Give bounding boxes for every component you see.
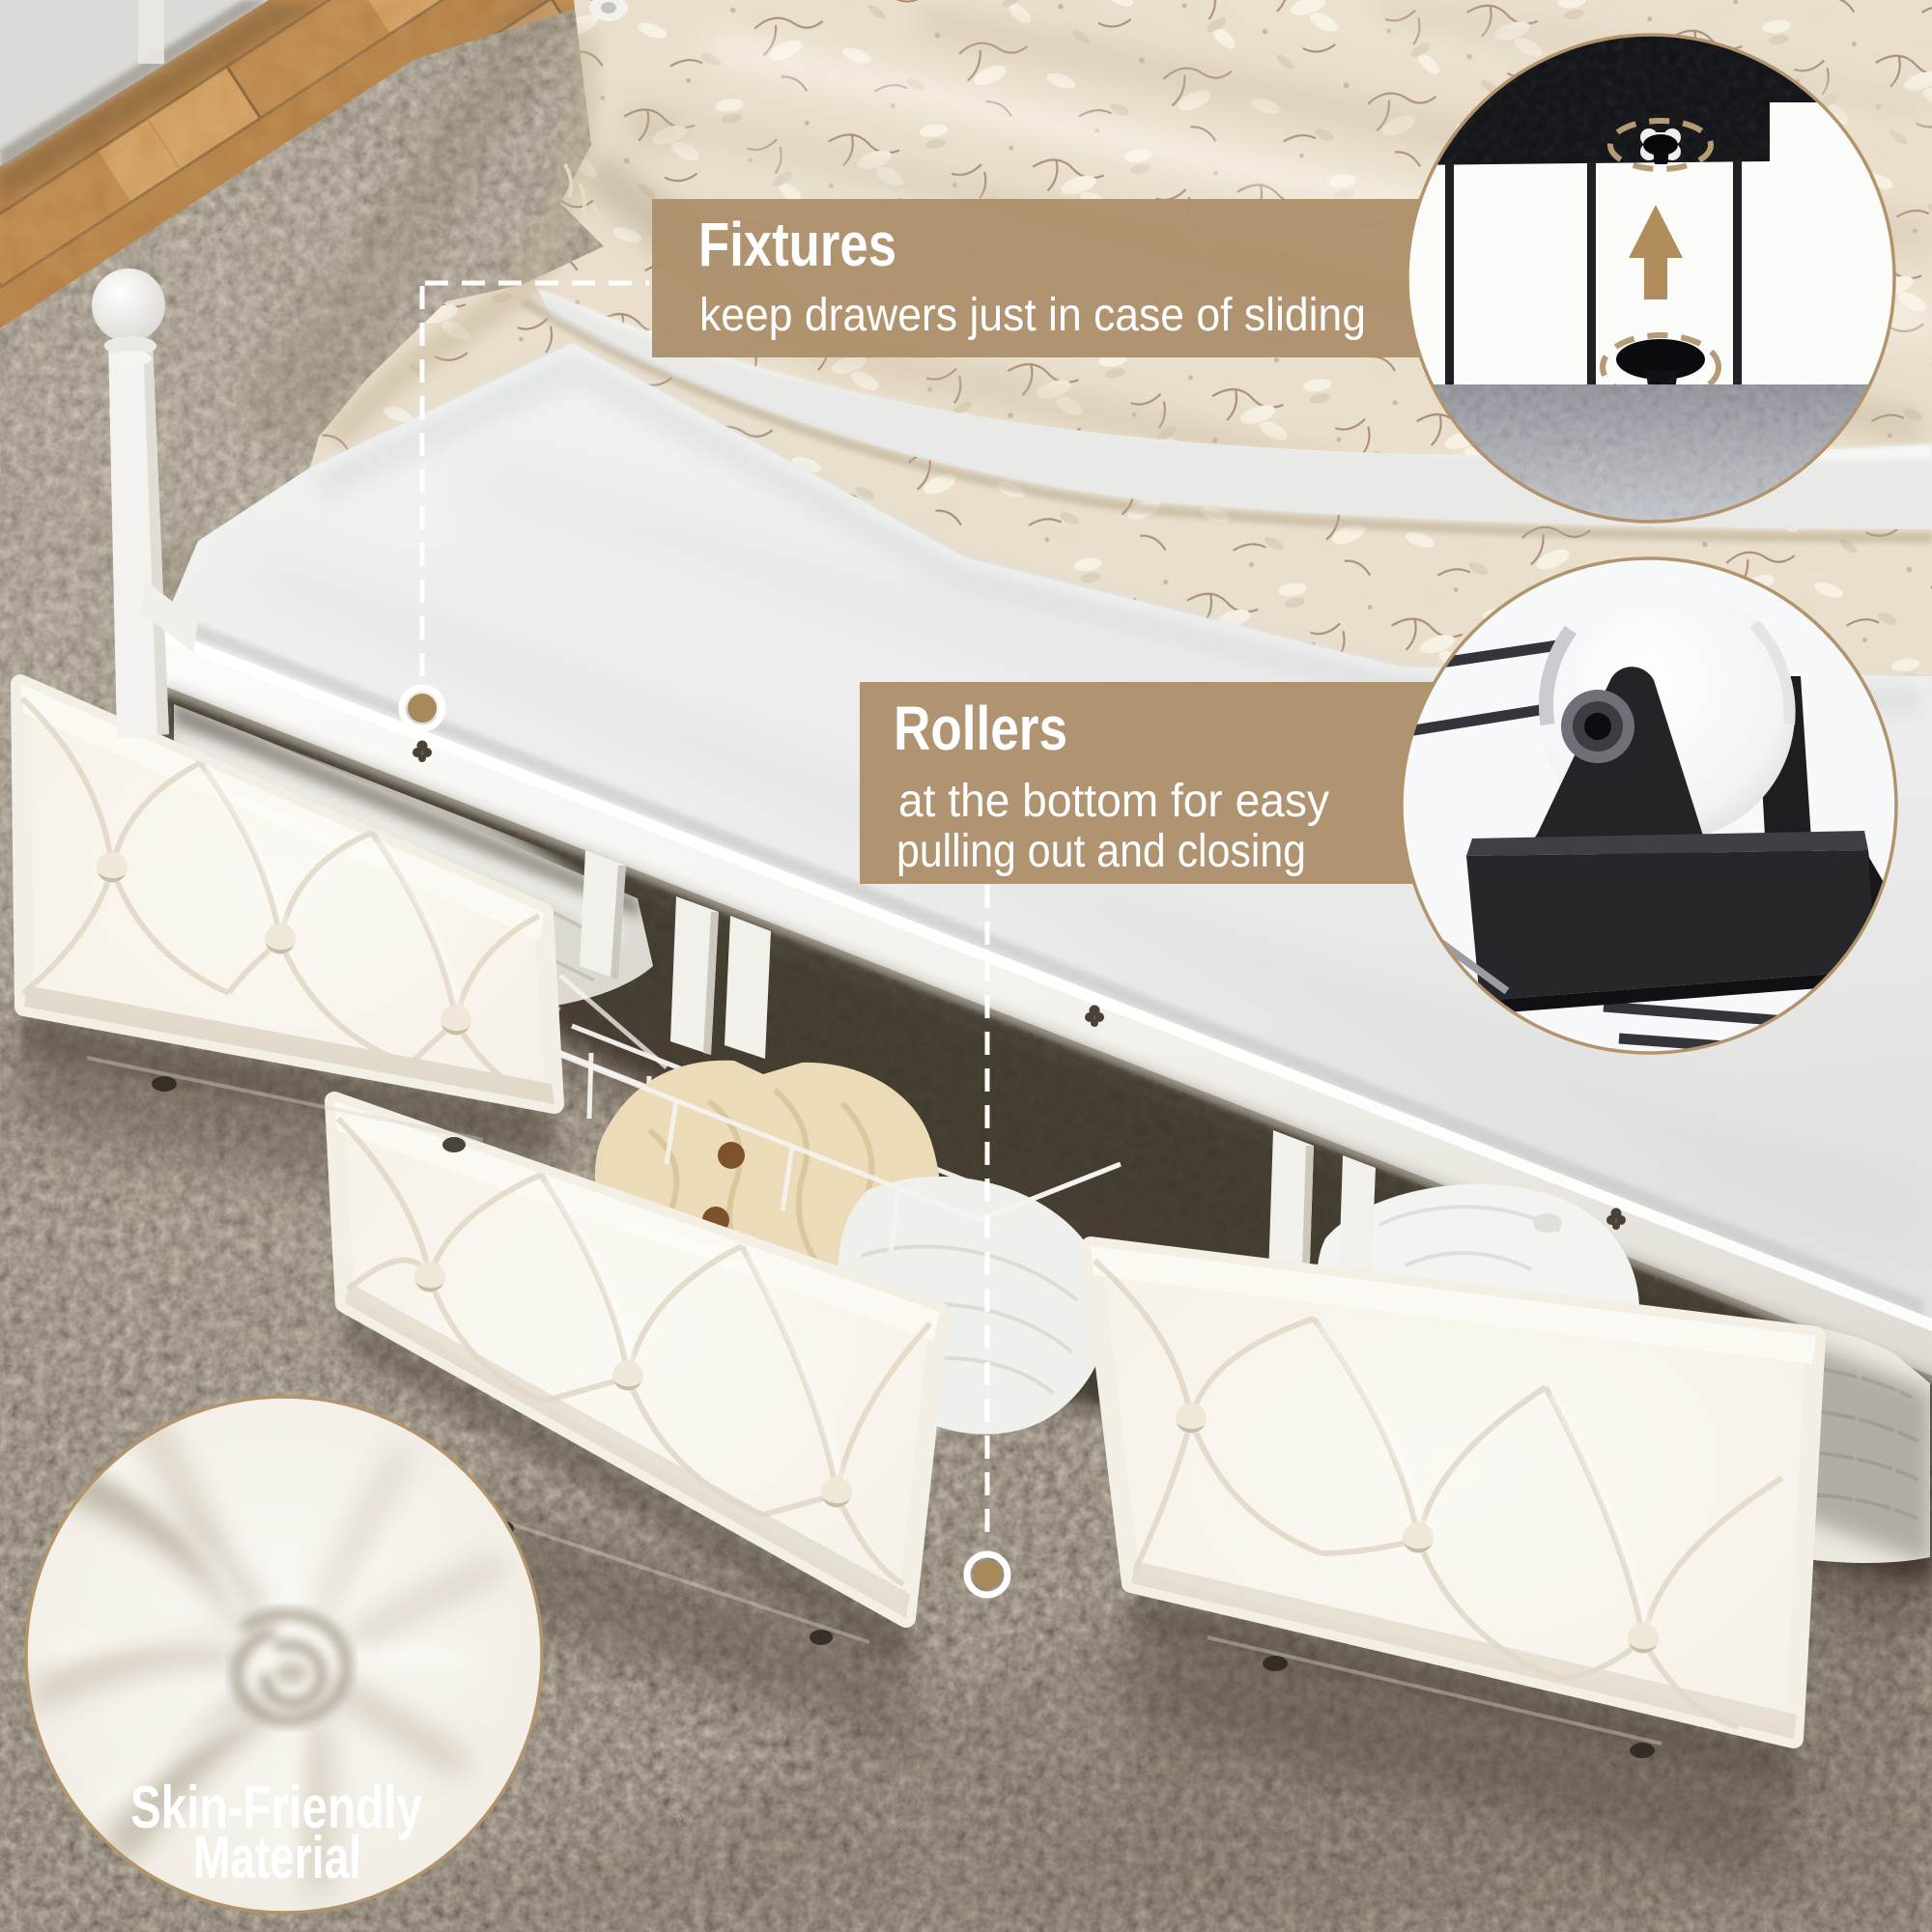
svg-text:keep drawers just in case of s: keep drawers just in case of sliding bbox=[699, 290, 1366, 341]
svg-text:Fixtures: Fixtures bbox=[698, 210, 896, 279]
svg-text:Material: Material bbox=[193, 1825, 361, 1891]
svg-text:at the bottom for easy: at the bottom for easy bbox=[898, 776, 1329, 827]
svg-text:pulling out and closing: pulling out and closing bbox=[896, 826, 1306, 877]
svg-text:Rollers: Rollers bbox=[894, 694, 1067, 763]
